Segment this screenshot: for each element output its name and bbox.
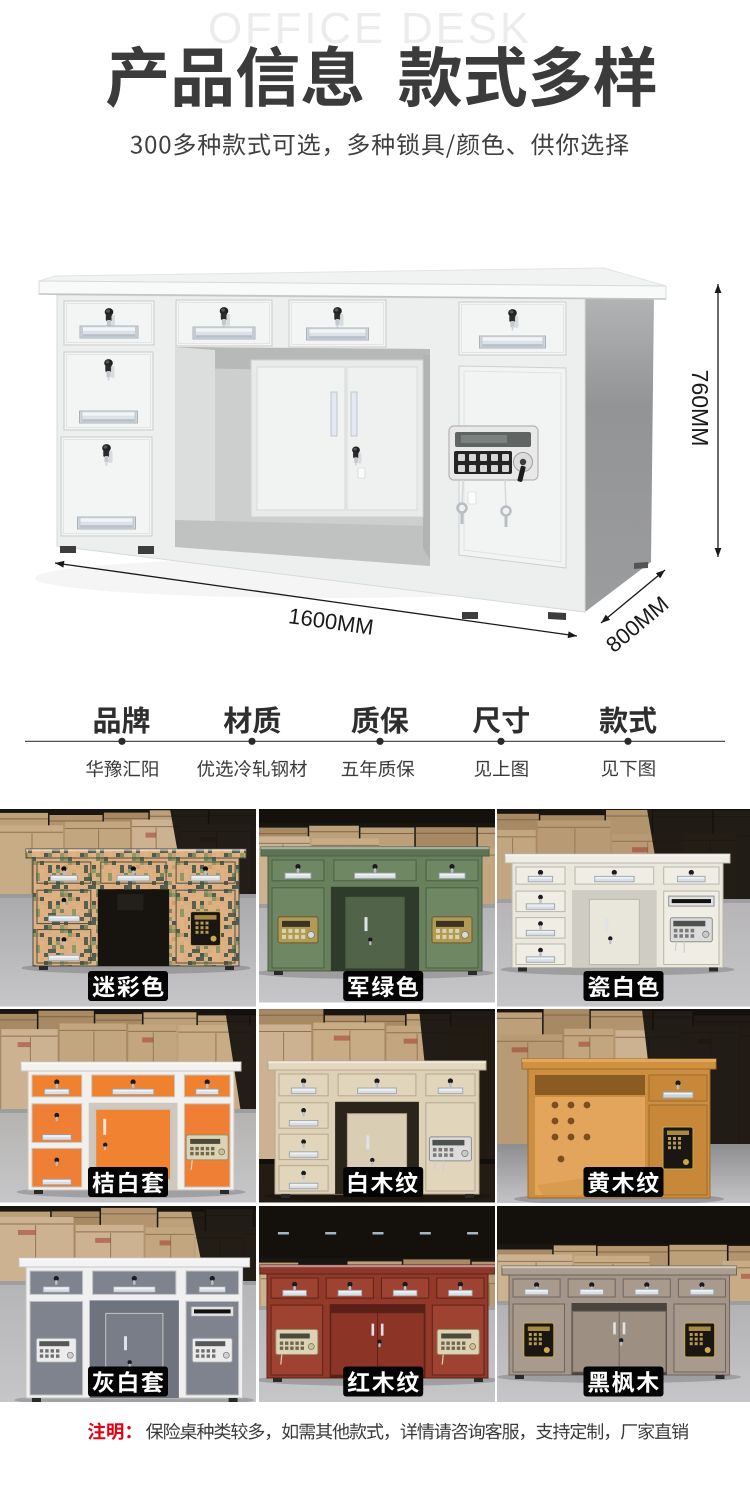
svg-text:760MM: 760MM bbox=[687, 370, 713, 447]
svg-text:800MM: 800MM bbox=[601, 591, 673, 657]
svg-text:1600MM: 1600MM bbox=[287, 603, 375, 640]
